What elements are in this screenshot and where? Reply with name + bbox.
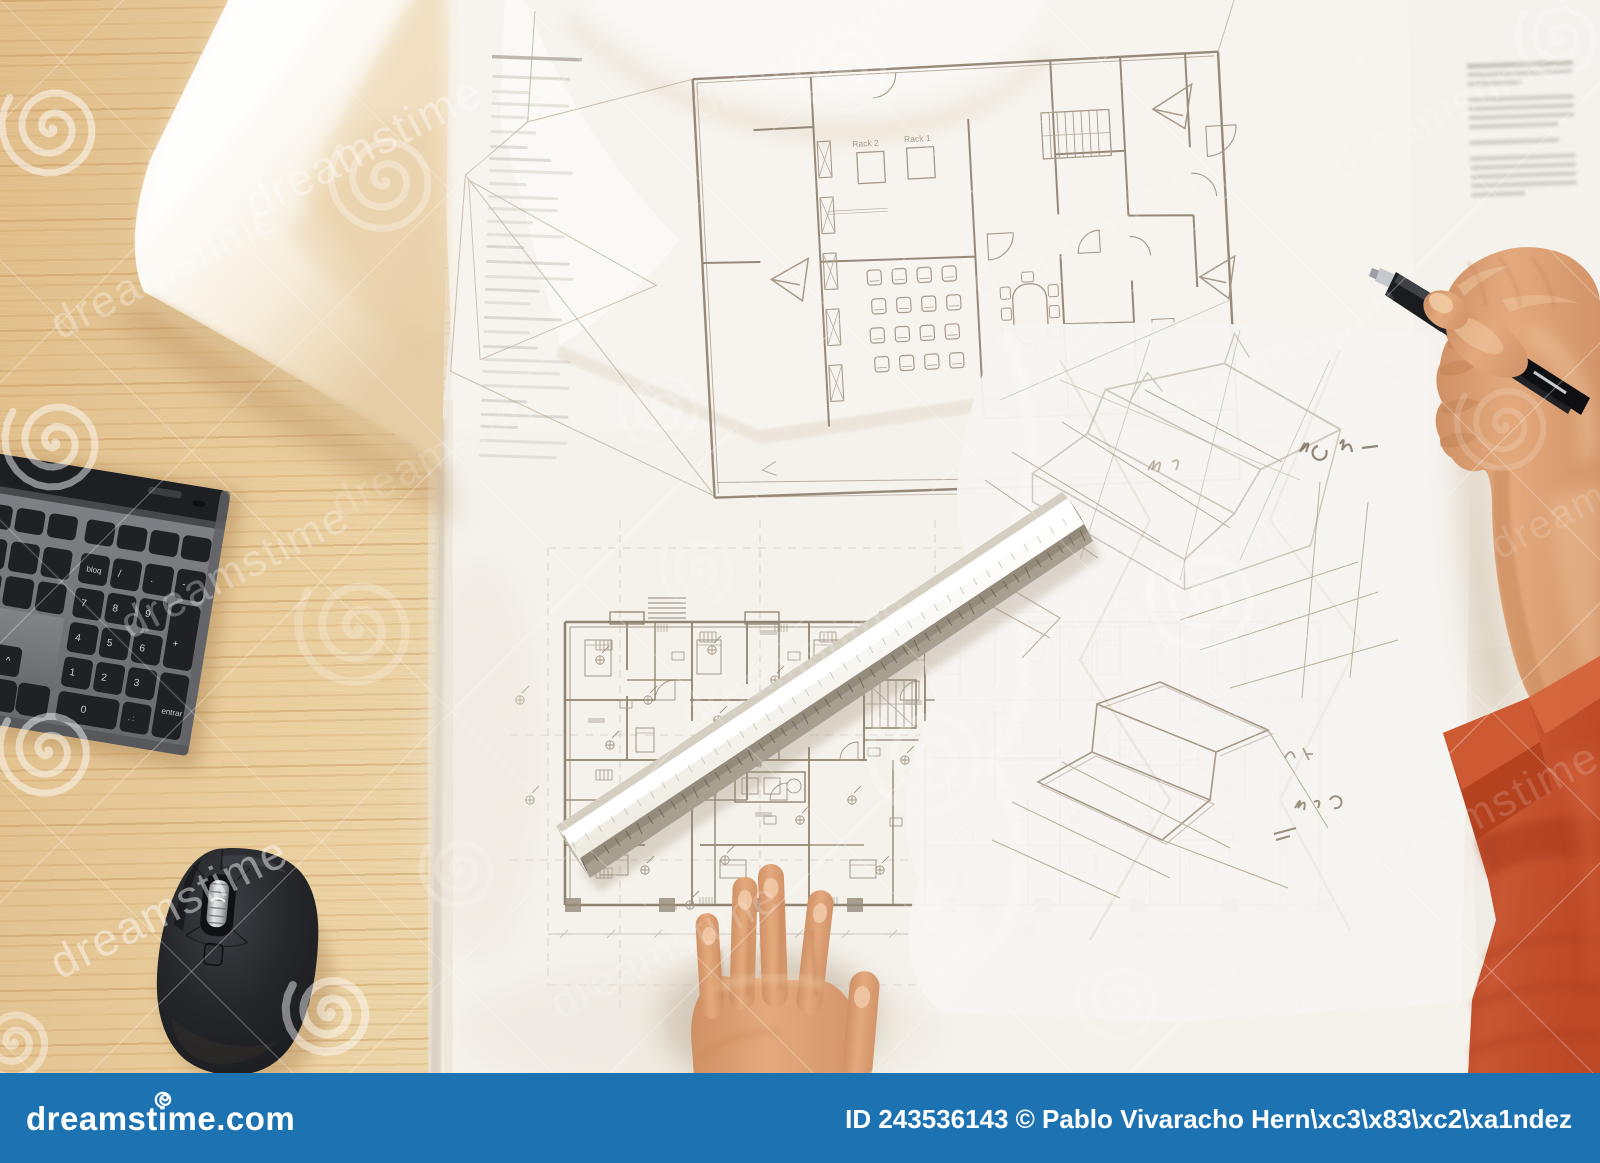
svg-text:Rack 1: Rack 1 — [904, 133, 931, 144]
svg-text:Rack 2: Rack 2 — [852, 138, 879, 149]
